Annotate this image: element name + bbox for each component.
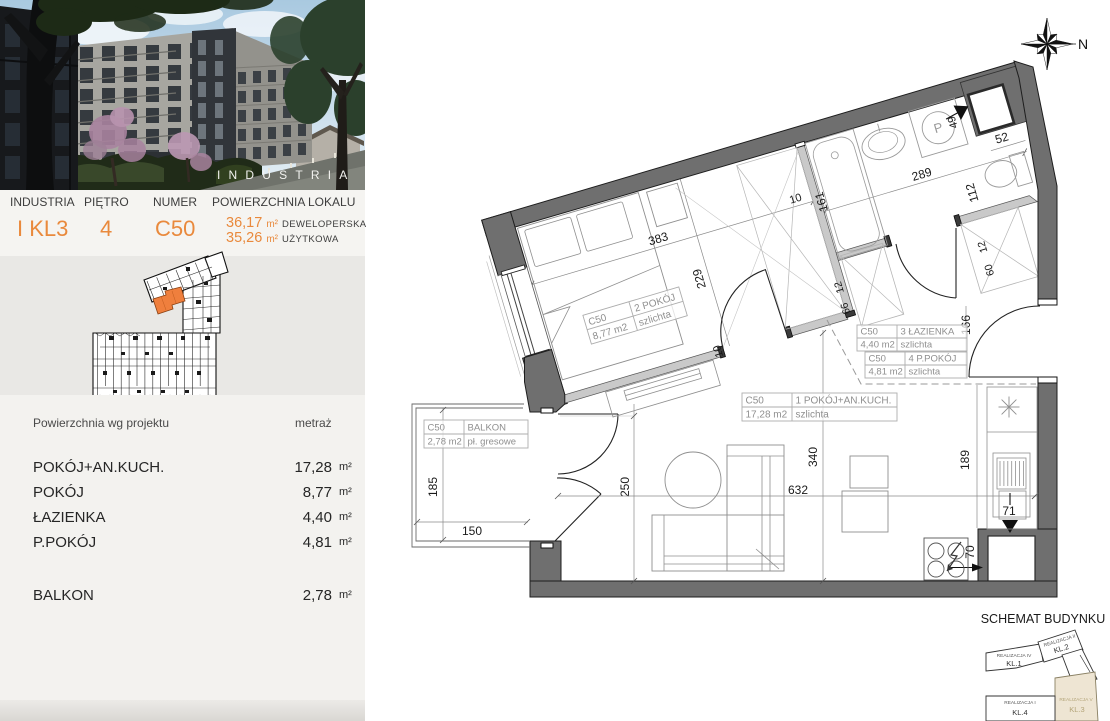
svg-text:C50: C50 [746, 396, 765, 407]
svg-text:112: 112 [963, 181, 982, 204]
svg-text:52: 52 [993, 129, 1010, 146]
svg-text:REALIZACJA V: REALIZACJA V [1059, 697, 1093, 703]
svg-text:4 P.POKÓJ: 4 P.POKÓJ [909, 354, 957, 365]
svg-text:71: 71 [1002, 504, 1016, 518]
svg-text:4,81 m2: 4,81 m2 [869, 367, 903, 378]
svg-text:C50: C50 [861, 327, 878, 338]
svg-text:185: 185 [426, 477, 440, 497]
svg-text:4,40 m2: 4,40 m2 [861, 340, 895, 351]
svg-text:289: 289 [910, 165, 933, 184]
svg-text:szlichta: szlichta [901, 340, 933, 351]
svg-text:pł. gresowe: pł. gresowe [468, 437, 517, 448]
svg-text:KL.1: KL.1 [1006, 659, 1021, 668]
svg-text:189: 189 [958, 450, 972, 470]
svg-text:BALKON: BALKON [468, 423, 507, 434]
svg-text:70: 70 [963, 545, 977, 559]
svg-text:szlichta: szlichta [909, 367, 941, 378]
svg-text:3 ŁAZIENKA: 3 ŁAZIENKA [901, 327, 956, 338]
svg-text:340: 340 [806, 447, 820, 467]
svg-text:17,28 m2: 17,28 m2 [746, 410, 788, 421]
svg-text:250: 250 [618, 477, 632, 497]
svg-text:49: 49 [946, 115, 961, 130]
svg-text:KL.4: KL.4 [1012, 708, 1027, 717]
svg-text:SCHEMAT BUDYNKU: SCHEMAT BUDYNKU [981, 612, 1106, 626]
svg-text:229: 229 [690, 267, 709, 290]
svg-text:2,78 m2: 2,78 m2 [428, 437, 462, 448]
svg-text:161: 161 [812, 190, 831, 213]
svg-text:60: 60 [983, 262, 997, 276]
svg-text:632: 632 [788, 483, 808, 497]
svg-text:12: 12 [976, 239, 990, 253]
svg-text:N: N [1078, 36, 1088, 52]
svg-text:REALIZACJA I: REALIZACJA I [1004, 700, 1035, 706]
svg-text:szlichta: szlichta [796, 410, 830, 421]
svg-text:150: 150 [462, 524, 482, 538]
svg-text:C50: C50 [428, 423, 445, 434]
svg-text:10: 10 [788, 192, 803, 207]
svg-text:KL.3: KL.3 [1069, 705, 1084, 714]
svg-text:P: P [932, 119, 945, 136]
svg-text:1 POKÓJ+AN.KUCH.: 1 POKÓJ+AN.KUCH. [796, 394, 892, 407]
svg-text:C50: C50 [869, 354, 886, 365]
